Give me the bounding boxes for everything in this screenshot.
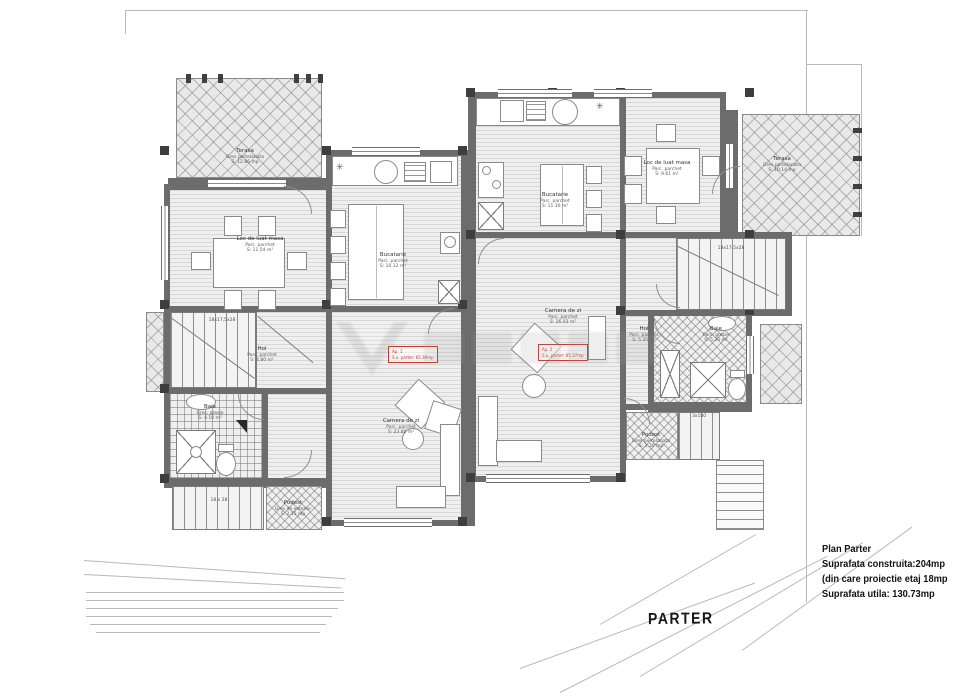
bath-cabinet — [660, 350, 680, 398]
column — [466, 473, 475, 482]
exterior-steps-bottom-right — [716, 460, 764, 530]
site-contour-line — [90, 624, 326, 625]
room-label-hall-right: Hol Parc. parchet S: 5.35 m² — [622, 326, 666, 344]
room-area: S: 23.80 m² — [368, 430, 434, 436]
floor-plan-canvas: ✳ ✳ Ap. 1 S. — [0, 0, 963, 700]
room-hall-right — [620, 310, 654, 410]
shaft — [438, 280, 460, 304]
stove — [526, 101, 546, 121]
terrace-tick — [202, 74, 207, 83]
stair-dimension: 18x17,5x28 — [698, 246, 764, 251]
room-area: S: 2.30 mp — [622, 444, 680, 450]
burner — [482, 166, 491, 175]
chair — [330, 210, 346, 228]
light-symbol-icon: ✳ — [336, 163, 344, 173]
chair — [224, 216, 242, 236]
column — [616, 473, 625, 482]
terrace-tick — [318, 74, 323, 83]
property-line — [125, 10, 808, 11]
plan-info-line: Suprafata construita:204mp — [822, 557, 958, 572]
room-label-hall-left: Hol Parc. parchet S: 4.80 m² — [236, 346, 288, 364]
toilet-tank — [730, 370, 745, 378]
chair — [656, 206, 676, 224]
room-label-terasa-left: Terasa Gres portelanata S: 12.86 mp — [200, 148, 290, 166]
property-line — [806, 64, 862, 65]
kitchen-sink — [374, 160, 398, 184]
room-area: S: 10.14 mp — [746, 168, 818, 174]
room-label-living-right: Camera de zi Parc. parchet S: 26.03 m² — [530, 308, 596, 326]
column — [160, 300, 169, 309]
window — [746, 336, 754, 374]
bench — [496, 440, 542, 462]
window — [161, 206, 169, 280]
window — [498, 89, 572, 98]
red-annotation-line: S.u. parter: 65.37mp — [542, 353, 584, 359]
room-area: S: 2.15 mp — [262, 512, 324, 518]
column — [160, 474, 169, 483]
shower-drain — [190, 446, 202, 458]
stair-dimension: 18x17,5x28 — [192, 318, 252, 323]
room-label-terasa-right: Terasa Gres portelanata S: 10.14 mp — [746, 156, 818, 174]
exterior-steps-right — [678, 412, 720, 460]
site-contour-line — [86, 608, 338, 609]
plan-info-block: Plan Parter Suprafata construita:204mp (… — [822, 542, 958, 602]
party-wall — [468, 92, 475, 154]
room-label-kitchen-right: Bucatarie Parc. parchet S: 11.30 m² — [524, 192, 586, 210]
chair — [191, 252, 211, 270]
room-label-bath-right: Baie Parc. gresie S: 5.20 m² — [688, 326, 744, 344]
room-name: Loc de luat masa — [230, 236, 290, 243]
terrace-tick — [853, 156, 862, 161]
kitchen-sink — [500, 100, 524, 122]
room-area: S: 10.12 m² — [362, 264, 424, 270]
room-label-podest-right: Podest Gres portelanata S: 2.30 mp — [622, 432, 680, 450]
room-area: S: 9.61 m² — [636, 172, 698, 178]
chair — [656, 124, 676, 142]
site-contour-line — [96, 632, 320, 633]
bench — [396, 486, 446, 508]
site-contour-line — [86, 600, 344, 601]
room-name: Loc de luat masa — [636, 160, 698, 167]
room-label-podest-left: Podest Gres de exterior S: 2.15 mp — [262, 500, 324, 518]
room-area: S: 26.03 m² — [530, 320, 596, 326]
light-symbol-icon: ✳ — [596, 102, 604, 112]
shaft — [478, 202, 504, 230]
chair — [624, 184, 642, 204]
chair — [330, 262, 346, 280]
oven — [430, 161, 452, 183]
burner — [492, 180, 501, 189]
room-area: S: 11.30 m² — [524, 204, 586, 210]
room-area: S: 5.35 m² — [622, 338, 666, 344]
chair — [586, 214, 602, 232]
party-wall — [461, 150, 475, 526]
sofa — [478, 396, 498, 466]
terrace-tick — [306, 74, 311, 83]
chair — [330, 288, 346, 306]
column — [160, 146, 169, 155]
chair — [258, 290, 276, 310]
deck-right — [760, 324, 802, 404]
terrace-tick — [853, 128, 862, 133]
room-label-bath-left: Baie Gres. gresie S: 4.10 m² — [184, 404, 236, 422]
wall — [648, 402, 752, 412]
chair — [586, 166, 602, 184]
terrace-tick — [186, 74, 191, 83]
room-label-kitchen-left: Bucatarie Parc. parchet S: 10.12 m² — [362, 252, 424, 270]
room-area: S: 4.80 m² — [236, 358, 288, 364]
column — [160, 384, 169, 393]
column — [458, 517, 467, 526]
toilet — [216, 452, 236, 476]
room-area: S: 12.86 mp — [200, 160, 290, 166]
column — [322, 517, 331, 526]
fridge-detail — [444, 236, 456, 248]
column — [458, 146, 467, 155]
terrace-tick — [294, 74, 299, 83]
column — [745, 88, 754, 97]
room-label-living-left: Camera de zi Parc. parchet S: 23.80 m² — [368, 418, 434, 436]
window — [344, 518, 432, 527]
red-annotation-line: S.u. parter: 65.36mp — [392, 355, 434, 361]
property-line — [125, 10, 126, 34]
coffee-table — [522, 374, 546, 398]
chair — [586, 190, 602, 208]
column — [466, 88, 475, 97]
chair — [702, 156, 720, 176]
plan-level-title: PARTER — [648, 608, 714, 627]
property-line — [806, 10, 807, 602]
room-area: S: 4.10 m² — [184, 416, 236, 422]
column — [616, 230, 625, 239]
terrace-tick — [853, 212, 862, 217]
terrace-tick — [218, 74, 223, 83]
toilet-tank — [218, 444, 234, 452]
red-annotation-right: Ap. 2 S.u. parter: 65.37mp — [538, 344, 588, 361]
column — [322, 146, 331, 155]
room-area: S: 11.54 m² — [230, 248, 290, 254]
cooktop — [552, 99, 578, 125]
plan-info-line: (din care proiectie etaj 18mp — [822, 572, 958, 587]
chair — [330, 236, 346, 254]
toilet — [728, 378, 746, 400]
stove — [404, 162, 426, 182]
plan-info-line: Suprafata utila: 130.73mp — [822, 587, 958, 602]
column — [466, 230, 475, 239]
steps-dimension: 18 x 28 — [196, 498, 242, 503]
shower — [690, 362, 726, 398]
exterior-niche-left — [146, 312, 164, 392]
terrace-right — [742, 114, 860, 236]
door-marker — [236, 420, 247, 433]
room-label-dining-left: Loc de luat masa Parc. parchet S: 11.54 … — [230, 236, 290, 254]
window — [486, 474, 590, 483]
column — [616, 306, 625, 315]
site-contour-line — [86, 616, 332, 617]
chair — [287, 252, 307, 270]
property-line — [861, 64, 862, 236]
chair — [258, 216, 276, 236]
exterior-steps-left — [172, 486, 264, 530]
terrace-tick — [853, 184, 862, 189]
site-contour-line — [86, 592, 344, 593]
plan-info-line: Plan Parter — [822, 542, 958, 557]
window — [208, 179, 286, 188]
room-label-dining-right: Loc de luat masa Parc. parchet S: 9.61 m… — [636, 160, 698, 178]
site-contour-line — [520, 583, 755, 669]
window — [352, 147, 420, 156]
room-area: S: 5.20 m² — [688, 338, 744, 344]
red-annotation-left: Ap. 1 S.u. parter: 65.36mp — [388, 346, 438, 363]
chair — [224, 290, 242, 310]
steps-dimension: 3x180 — [678, 414, 720, 419]
window — [594, 89, 652, 98]
